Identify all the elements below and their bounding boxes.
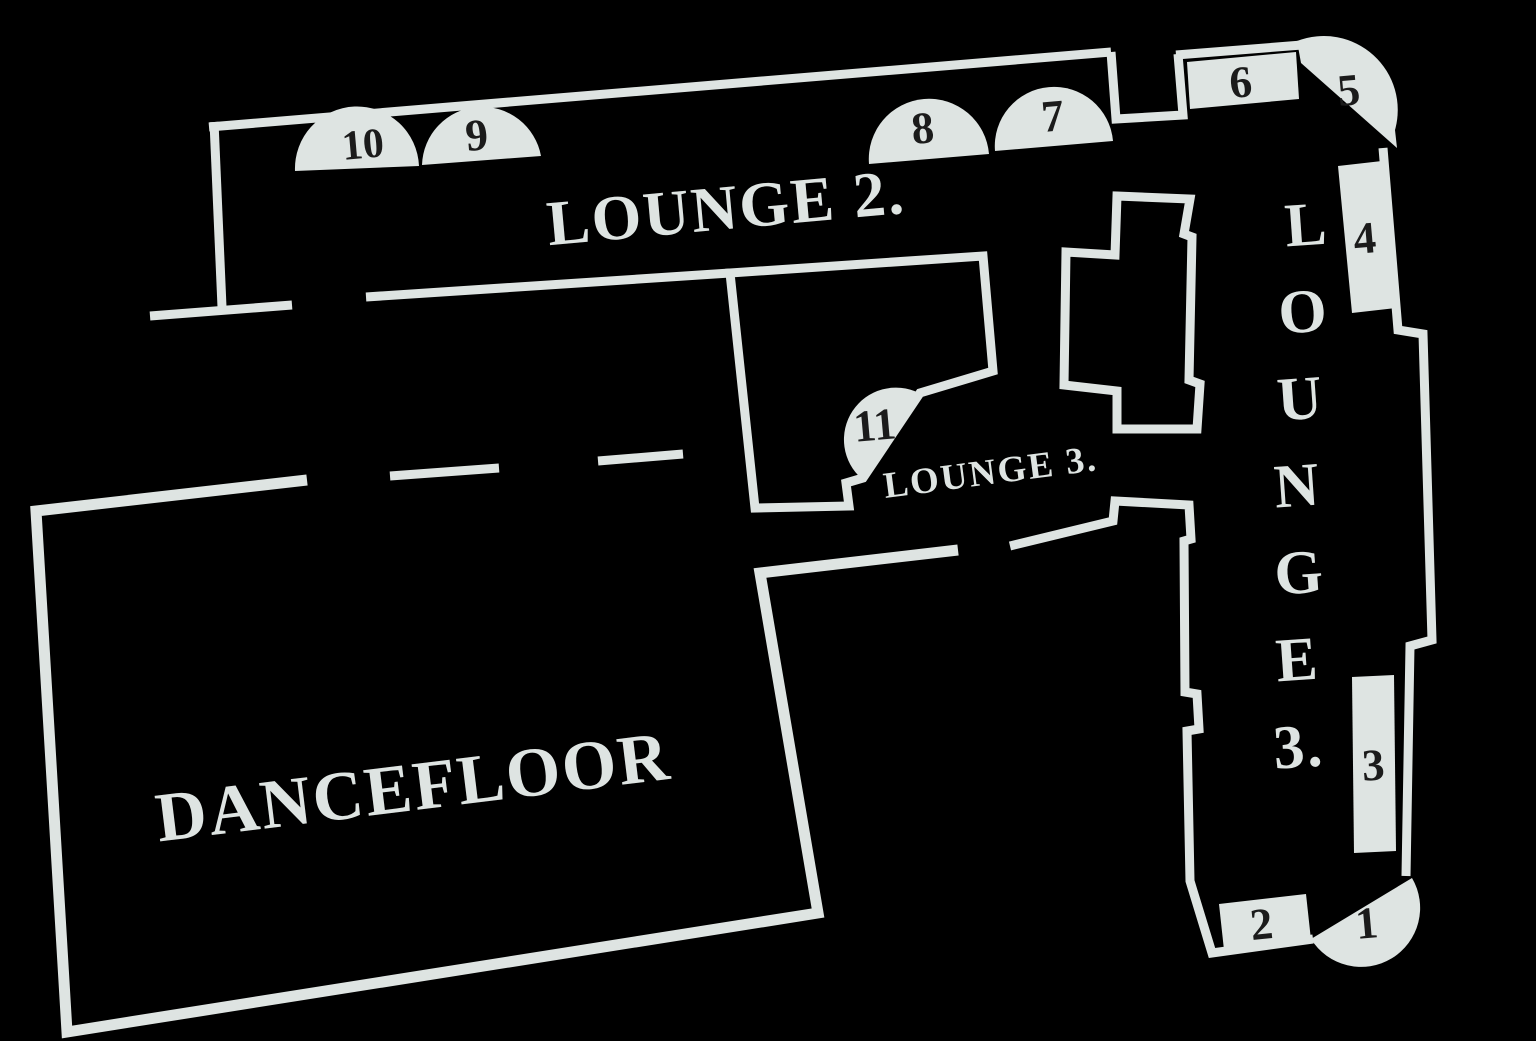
booth-6[interactable]: 6 [1187,52,1299,109]
booth-7-number: 7 [1039,90,1066,142]
booth-9-number: 9 [463,109,490,161]
booth-5-number: 5 [1335,64,1362,116]
booth-8[interactable]: 8 [869,99,989,164]
booth-1[interactable]: 1 [1311,878,1420,967]
lounge3-vertical-letter: E [1274,625,1322,696]
wall-lounge2-doorway-notch [1111,52,1183,119]
lounge2-label: LOUNGE 2. [544,156,908,259]
wall-lounge2-left [214,122,222,307]
booth-11-number: 11 [851,398,898,452]
floorplan-canvas: 1 2 3 4 5 6 [0,0,1536,1041]
booth-7[interactable]: 7 [995,87,1113,151]
wall-dash-1 [390,468,499,476]
lounge3-vertical-letter: N [1272,450,1323,521]
lounge3-vertical-letter: G [1272,537,1327,608]
booth-6-number: 6 [1227,56,1254,108]
wall-lounge2-left-foot [150,305,292,316]
lounge3-vertical-label: L O U N G E 3. [1271,190,1331,783]
lounge3-inline-label: LOUNGE 3. [881,438,1100,507]
booth-3-number: 3 [1361,739,1386,790]
wall-cross-structure [1064,196,1200,429]
booth-1-number: 1 [1353,897,1380,949]
lounge3-vertical-letter: U [1275,363,1326,434]
floorplan-svg: 1 2 3 4 5 6 [0,0,1536,1041]
booth-5[interactable]: 5 [1297,36,1398,148]
wall-lounge2-bottom [366,273,730,297]
booth-3[interactable]: 3 [1352,675,1396,853]
wall-dash-2 [598,454,683,461]
booth-9[interactable]: 9 [422,107,541,165]
lounge3-vertical-letter: 3. [1271,711,1326,782]
booth-4-number: 4 [1351,212,1378,264]
booth-10-number: 10 [340,120,386,169]
lounge3-vertical-letter: O [1276,276,1331,347]
booth-8-number: 8 [909,102,936,154]
wall-lounge3-left [1010,501,1313,953]
lounge3-vertical-letter: L [1283,190,1331,261]
dancefloor-label: DANCEFLOOR [152,718,675,858]
